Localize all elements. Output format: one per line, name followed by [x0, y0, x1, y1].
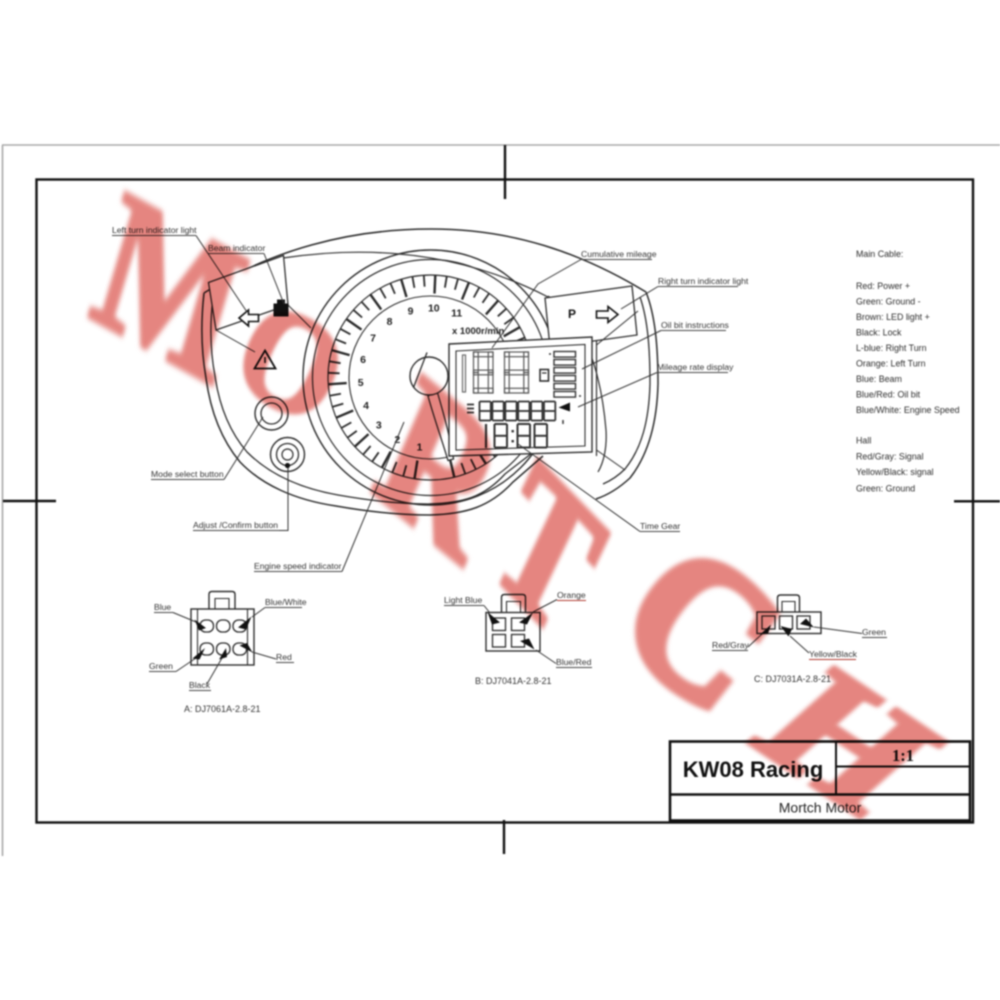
svg-text:7: 7 — [370, 333, 376, 345]
svg-text:Orange: Left Turn: Orange: Left Turn — [856, 359, 926, 369]
svg-text:Adjust /Confirm button: Adjust /Confirm button — [193, 520, 278, 530]
svg-text:Black: Black — [189, 680, 211, 690]
svg-text:10: 10 — [428, 303, 440, 315]
svg-text:Main Cable:: Main Cable: — [856, 249, 903, 259]
svg-text:Green: Ground -: Green: Ground - — [856, 297, 921, 307]
svg-text:Mode select button: Mode select button — [151, 469, 224, 479]
svg-text:Time Gear: Time Gear — [640, 521, 680, 531]
svg-text:3: 3 — [376, 420, 382, 432]
svg-text:9: 9 — [408, 305, 414, 317]
svg-text:L-blue: Right Turn: L-blue: Right Turn — [856, 343, 927, 353]
svg-text:Green: Green — [149, 661, 173, 671]
svg-text:8: 8 — [387, 316, 393, 328]
svg-text:6: 6 — [360, 354, 366, 366]
svg-text:x 1000r/min: x 1000r/min — [452, 326, 504, 337]
svg-text:Yellow/Black: signal: Yellow/Black: signal — [856, 467, 934, 477]
svg-text:11: 11 — [451, 308, 462, 320]
svg-text:Red/Gray: Signal: Red/Gray: Signal — [856, 452, 924, 462]
svg-text:Black: Lock: Black: Lock — [856, 328, 902, 338]
svg-text:B: DJ7041A-2.8-21: B: DJ7041A-2.8-21 — [475, 676, 552, 686]
svg-text:Engine speed indicator: Engine speed indicator — [254, 561, 342, 571]
svg-text:5: 5 — [358, 377, 364, 389]
svg-text:Right turn indicator light: Right turn indicator light — [658, 276, 749, 286]
svg-text:4: 4 — [363, 400, 369, 412]
svg-text:Blue: Beam: Blue: Beam — [856, 374, 902, 384]
svg-text:Cumulative mileage: Cumulative mileage — [581, 249, 657, 259]
svg-text:Red: Power +: Red: Power + — [856, 281, 910, 291]
svg-text:Blue/Red: Oil bit: Blue/Red: Oil bit — [856, 390, 921, 400]
svg-text:Blue: Blue — [154, 602, 171, 612]
svg-text:Brown: LED light +: Brown: LED light + — [856, 312, 930, 322]
svg-text:A: DJ7061A-2.8-21: A: DJ7061A-2.8-21 — [184, 704, 261, 714]
svg-text:Red: Red — [276, 652, 292, 662]
svg-text:Mileage rate display: Mileage rate display — [657, 362, 734, 372]
svg-text:Green: Ground: Green: Ground — [856, 484, 915, 494]
svg-text:Blue/White: Blue/White — [265, 597, 307, 607]
svg-text:P: P — [568, 307, 576, 321]
svg-text:Hall: Hall — [856, 436, 871, 446]
svg-text:Green: Green — [862, 627, 886, 637]
svg-text:Oil bit instructions: Oil bit instructions — [661, 320, 729, 330]
svg-text:Blue/White: Engine Speed: Blue/White: Engine Speed — [856, 405, 960, 415]
